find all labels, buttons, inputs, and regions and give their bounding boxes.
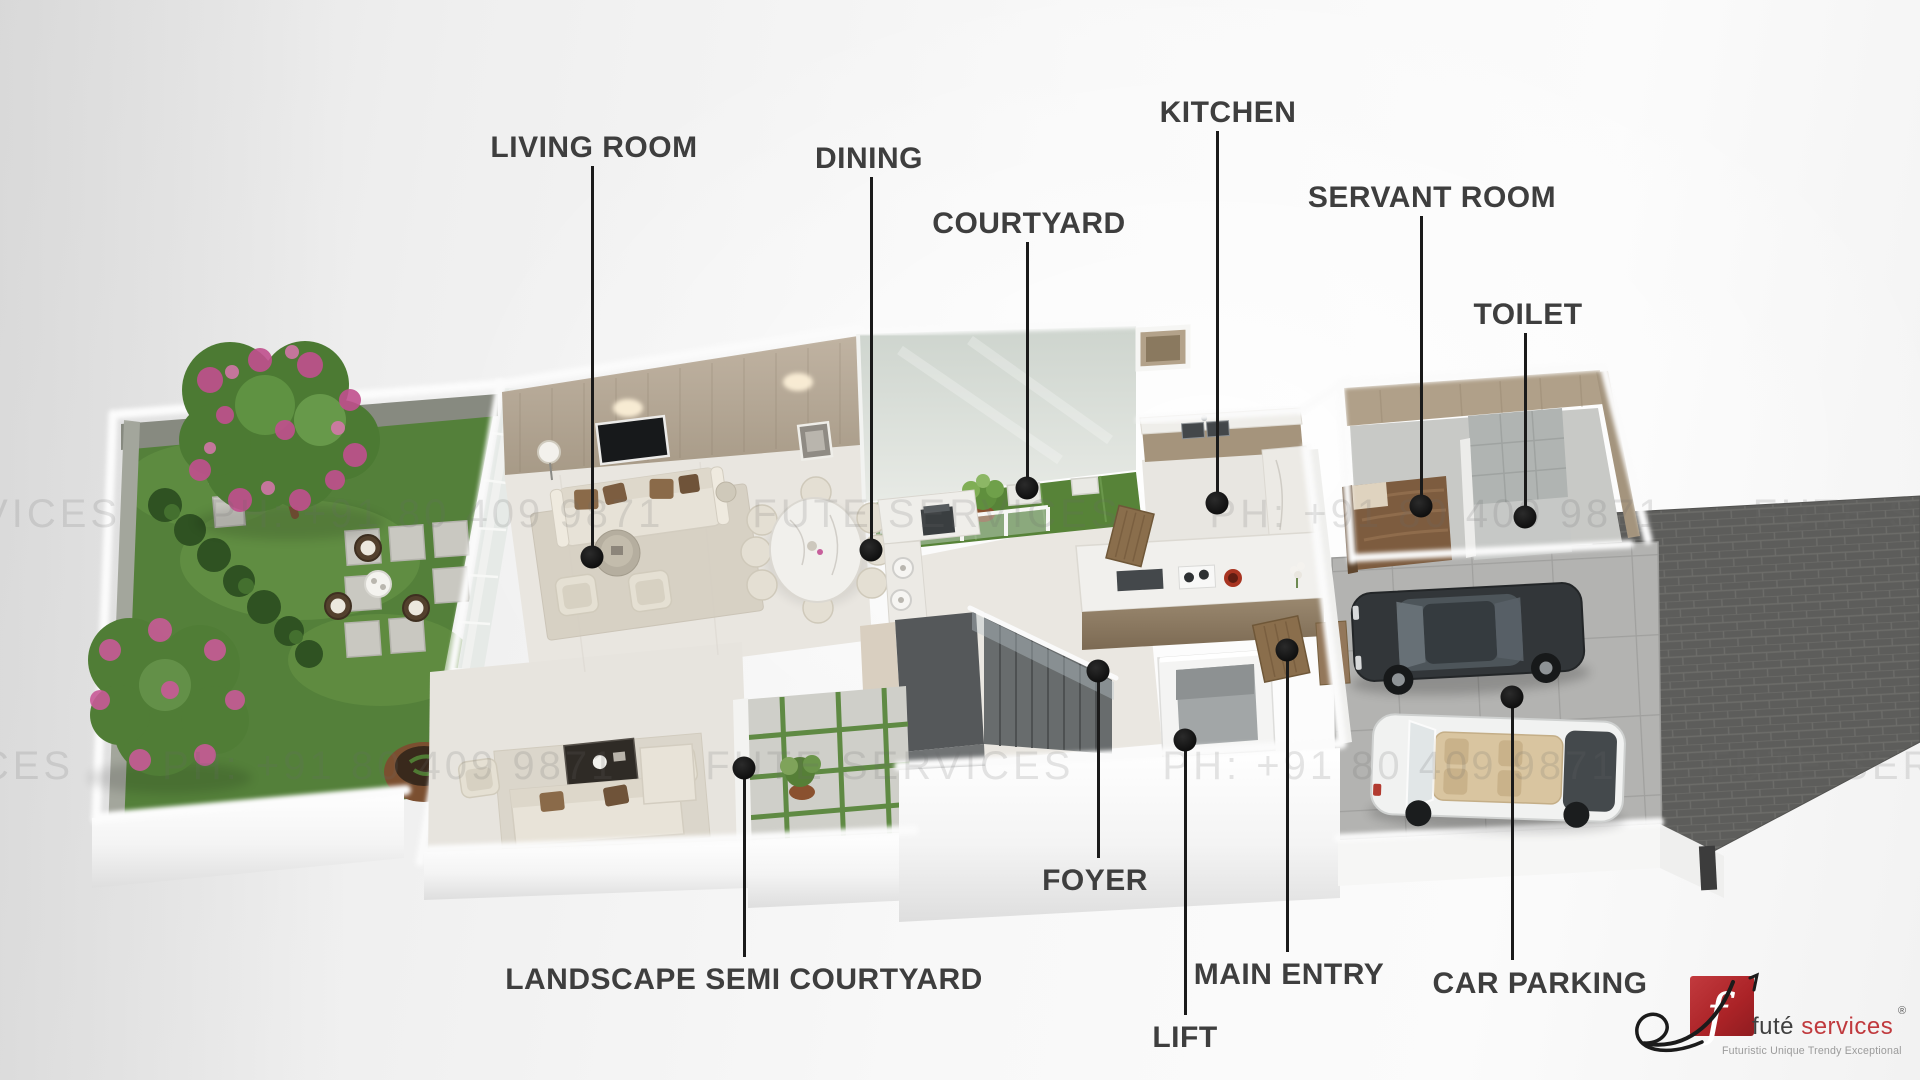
leader-line-living-room (591, 166, 594, 546)
boundary-doorway (1699, 846, 1717, 891)
leader-dot-main-entry (1276, 639, 1299, 662)
logo-registered-mark: ® (1898, 1005, 1906, 1017)
floor-plan-poster: FUTE SERVICES PH: +91 80 409 9871 FUTE S… (0, 0, 1920, 1080)
label-courtyard: COURTYARD (932, 207, 1125, 241)
armchair (555, 573, 600, 616)
leader-dot-toilet (1514, 506, 1537, 529)
label-dining: DINING (815, 142, 923, 176)
leader-line-kitchen (1216, 131, 1219, 492)
floor-plan-render (0, 0, 1920, 1080)
label-main-entry: MAIN ENTRY (1194, 958, 1385, 992)
car-sedan-dark (1346, 582, 1591, 700)
label-foyer: FOYER (1042, 864, 1148, 898)
leader-dot-foyer (1087, 660, 1110, 683)
label-lift: LIFT (1152, 1021, 1217, 1055)
leader-dot-landscape-semi-courtyard (733, 757, 756, 780)
toilet-area (1460, 408, 1572, 560)
leader-line-courtyard (1026, 242, 1029, 477)
logo-wordmark: futé services (1752, 1013, 1893, 1040)
leader-line-foyer (1097, 682, 1100, 858)
wall-art-frame (798, 422, 832, 459)
courtyard-light-well (1138, 327, 1188, 369)
label-car-parking: CAR PARKING (1433, 967, 1648, 1001)
ceiling-spotlight (783, 373, 813, 391)
leader-dot-dining (860, 539, 883, 562)
leader-line-main-entry (1286, 661, 1289, 952)
leader-line-lift (1184, 751, 1187, 1015)
fute-services-logo: f futé services ® Futuristic Unique Tren… (1620, 955, 1920, 1080)
label-landscape-semi-courtyard: LANDSCAPE SEMI COURTYARD (505, 963, 983, 997)
armchair (628, 569, 673, 612)
watermark-band-bottom: FUTE SERVICES PH: +91 80 409 9871 FUTE S… (0, 744, 1920, 789)
leader-dot-car-parking (1501, 686, 1524, 709)
ceiling-spotlight (613, 399, 643, 417)
leader-line-servant-room (1420, 216, 1423, 495)
leader-dot-living-room (581, 546, 604, 569)
label-servant-room: SERVANT ROOM (1308, 181, 1556, 215)
leader-dot-kitchen (1206, 492, 1229, 515)
label-toilet: TOILET (1473, 298, 1582, 332)
leader-line-car-parking (1511, 708, 1514, 960)
leader-line-toilet (1524, 333, 1527, 506)
island-inset (1117, 569, 1164, 591)
watermark-band-top: FUTE SERVICES PH: +91 80 409 9871 FUTE S… (0, 492, 1920, 537)
label-kitchen: KITCHEN (1160, 96, 1297, 130)
cooktop (1178, 565, 1215, 589)
leader-dot-servant-room (1410, 495, 1433, 518)
leader-line-dining (870, 177, 873, 539)
leader-dot-courtyard (1016, 477, 1039, 500)
leader-line-landscape-semi-courtyard (743, 779, 746, 957)
wall-tv (596, 416, 668, 464)
leader-dot-lift (1174, 729, 1197, 752)
logo-tagline: Futuristic Unique Trendy Exceptional (1722, 1045, 1902, 1057)
label-living-room: LIVING ROOM (490, 131, 697, 165)
